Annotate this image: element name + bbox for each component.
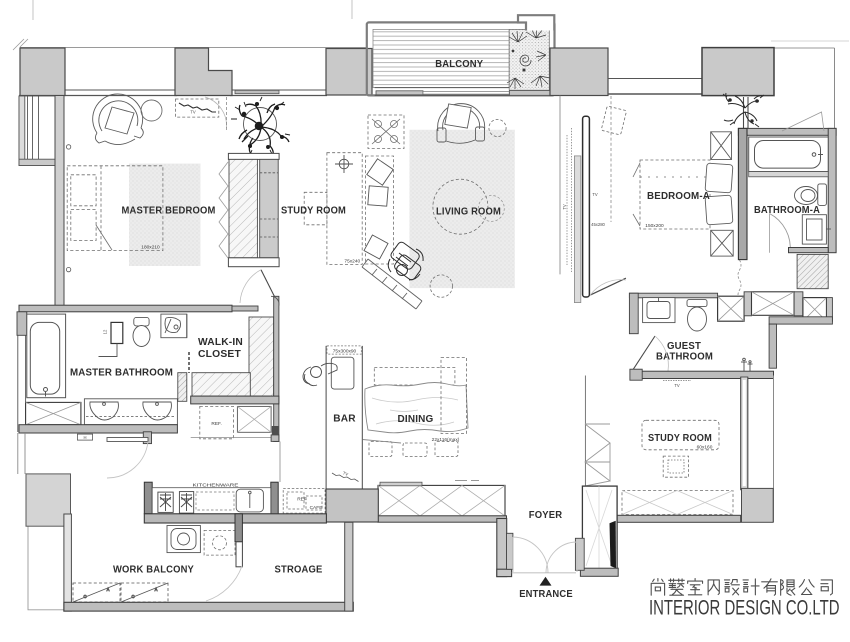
svg-text:FOYER: FOYER: [529, 510, 563, 521]
svg-text:150x200: 150x200: [645, 223, 664, 229]
svg-text:C: C: [131, 594, 134, 599]
svg-text:A: A: [155, 587, 158, 592]
svg-text:H: H: [83, 435, 86, 440]
svg-text:ENTRANCE: ENTRANCE: [519, 589, 573, 600]
svg-text:BALCONY: BALCONY: [435, 59, 483, 70]
svg-text:TV: TV: [562, 204, 567, 210]
svg-text:A: A: [107, 587, 110, 592]
svg-text:GUEST: GUEST: [667, 341, 701, 352]
svg-text:TV: TV: [190, 110, 196, 115]
svg-text:BEDROOM-A: BEDROOM-A: [647, 191, 710, 202]
svg-text:MASTER BEDROOM: MASTER BEDROOM: [122, 206, 216, 217]
svg-text:TV: TV: [592, 192, 598, 197]
svg-text:WALK-IN: WALK-IN: [198, 337, 243, 348]
svg-text:DINING: DINING: [398, 414, 434, 425]
svg-text:BATHROOM: BATHROOM: [656, 352, 713, 363]
svg-text:LIVING ROOM: LIVING ROOM: [436, 207, 501, 218]
svg-text:STROAGE: STROAGE: [275, 565, 323, 576]
svg-text:60x160: 60x160: [697, 445, 713, 451]
svg-text:KITCHENWARE: KITCHENWARE: [193, 483, 239, 489]
svg-text:75x240: 75x240: [344, 258, 360, 264]
svg-text:22x116(max): 22x116(max): [432, 437, 460, 443]
svg-text:TV: TV: [674, 383, 680, 388]
svg-text:75x300x90: 75x300x90: [333, 349, 357, 355]
svg-text:STUDY ROOM: STUDY ROOM: [281, 206, 346, 217]
svg-text:C: C: [83, 594, 86, 599]
svg-text:REF: REF: [297, 497, 307, 503]
svg-text:45x280: 45x280: [591, 222, 605, 227]
svg-text:12: 12: [103, 329, 108, 334]
svg-text:BAR: BAR: [333, 414, 356, 425]
svg-text:CLOSET: CLOSET: [198, 349, 241, 360]
svg-text:REF.: REF.: [211, 421, 221, 427]
svg-text:CAFE: CAFE: [310, 505, 323, 511]
svg-text:180x210: 180x210: [141, 245, 160, 251]
svg-text:MASTER BATHROOM: MASTER BATHROOM: [70, 368, 173, 379]
svg-text:INTERIOR DESIGN CO.LTD: INTERIOR DESIGN CO.LTD: [649, 597, 840, 620]
svg-text:STUDY ROOM: STUDY ROOM: [648, 433, 712, 444]
svg-text:WORK BALCONY: WORK BALCONY: [113, 565, 194, 576]
